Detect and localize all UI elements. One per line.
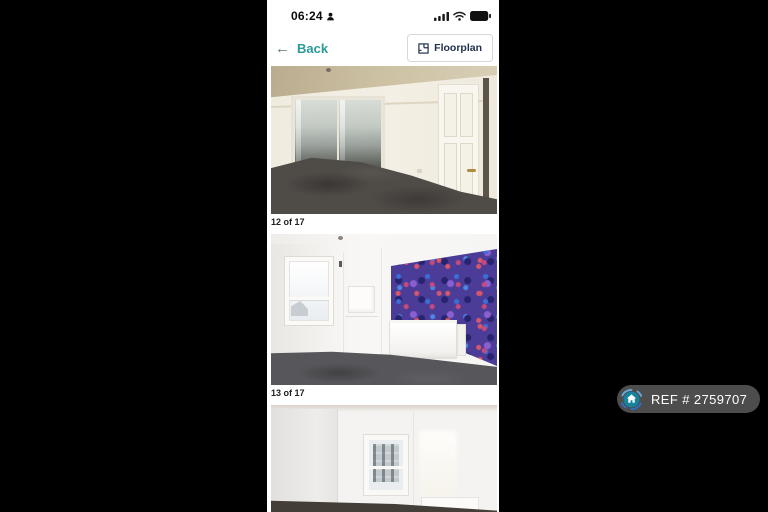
house-logo-icon (619, 387, 644, 412)
floorplan-button-label: Floorplan (434, 42, 482, 54)
status-bar-left: 06:24 (291, 9, 335, 23)
user-icon (326, 12, 335, 21)
left-arrow-icon: ← (275, 41, 290, 56)
gallery-photo-13[interactable] (271, 234, 497, 385)
back-button[interactable]: ← Back (275, 41, 328, 56)
floorplan-icon (418, 43, 429, 54)
photo3-wall-corner (337, 409, 338, 512)
cellular-signal-icon (434, 11, 449, 21)
photo1-door-panel (460, 93, 473, 137)
photo2-alcove-shelf (348, 286, 375, 313)
gallery-photo-12[interactable] (271, 66, 497, 214)
photo-caption: 13 of 17 (271, 385, 497, 405)
gallery-photo-next-partial[interactable] (271, 405, 497, 512)
letterbox-left (0, 0, 267, 512)
photo3-window-sash (369, 466, 403, 469)
photo2-radiator (389, 320, 457, 358)
photo-gallery[interactable]: 12 of 17 13 of 17 (267, 66, 499, 512)
floorplan-button[interactable]: Floorplan (407, 34, 493, 62)
status-bar-right (434, 11, 491, 21)
photo1-door-handle (467, 169, 476, 172)
photo2-window-view (291, 301, 308, 316)
photo3-light-patch (419, 431, 457, 497)
photo-caption: 12 of 17 (271, 214, 497, 234)
photo2-wall-edge (343, 252, 344, 364)
photo2-wall-fixture (339, 261, 342, 267)
photo1-wall-socket (417, 169, 422, 173)
back-button-label: Back (297, 41, 328, 56)
photo1-ceiling-fitting (326, 68, 331, 72)
letterbox-right (499, 0, 768, 512)
reference-number-label: REF # 2759707 (651, 392, 747, 407)
photo3-left-wall (271, 409, 337, 512)
photo2-window-sash (289, 297, 329, 300)
photo1-door-panel (444, 93, 457, 137)
photo2-shelf-line (345, 316, 378, 317)
phone-screen: 06:24 ← Back Floorplan (267, 0, 499, 512)
wifi-icon (453, 11, 466, 21)
status-bar: 06:24 (267, 0, 499, 30)
clock-label: 06:24 (291, 9, 323, 23)
photo2-radiator-end (457, 324, 466, 356)
photo2-window (285, 257, 333, 325)
photo2-wall-edge (381, 248, 382, 364)
photo3-wall-corner (413, 411, 414, 511)
navigation-bar: ← Back Floorplan (267, 30, 499, 66)
photo3-window (364, 435, 408, 495)
battery-icon (470, 11, 491, 21)
photo1-door-frame-shadow (483, 78, 489, 200)
photo3-window-view (373, 444, 399, 482)
photo2-ceiling-fitting (338, 236, 343, 240)
reference-watermark-badge: REF # 2759707 (617, 385, 760, 413)
